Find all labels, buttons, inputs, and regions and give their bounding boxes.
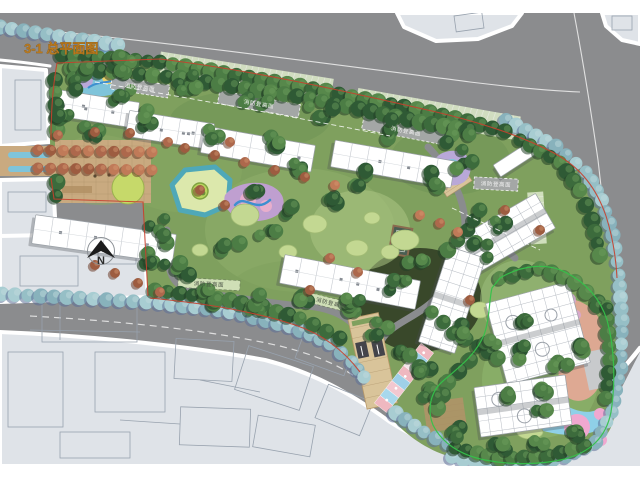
plaza-lawn-tree bbox=[112, 172, 144, 204]
master-plan-page: 消防登高面 消防登高面 消防登高面 消防登高面 消防登高面 消防登高面 N 3-… bbox=[0, 0, 640, 480]
page-margin-bottom bbox=[0, 466, 640, 480]
plan-title: 3-1 总平面图 bbox=[24, 41, 98, 56]
north-arrow-letter: N bbox=[97, 255, 105, 267]
page-margin-top bbox=[0, 0, 640, 13]
site-plan-drawing: 消防登高面 消防登高面 消防登高面 消防登高面 消防登高面 消防登高面 N 3-… bbox=[0, 0, 640, 480]
context-block-west-upper bbox=[0, 66, 49, 146]
